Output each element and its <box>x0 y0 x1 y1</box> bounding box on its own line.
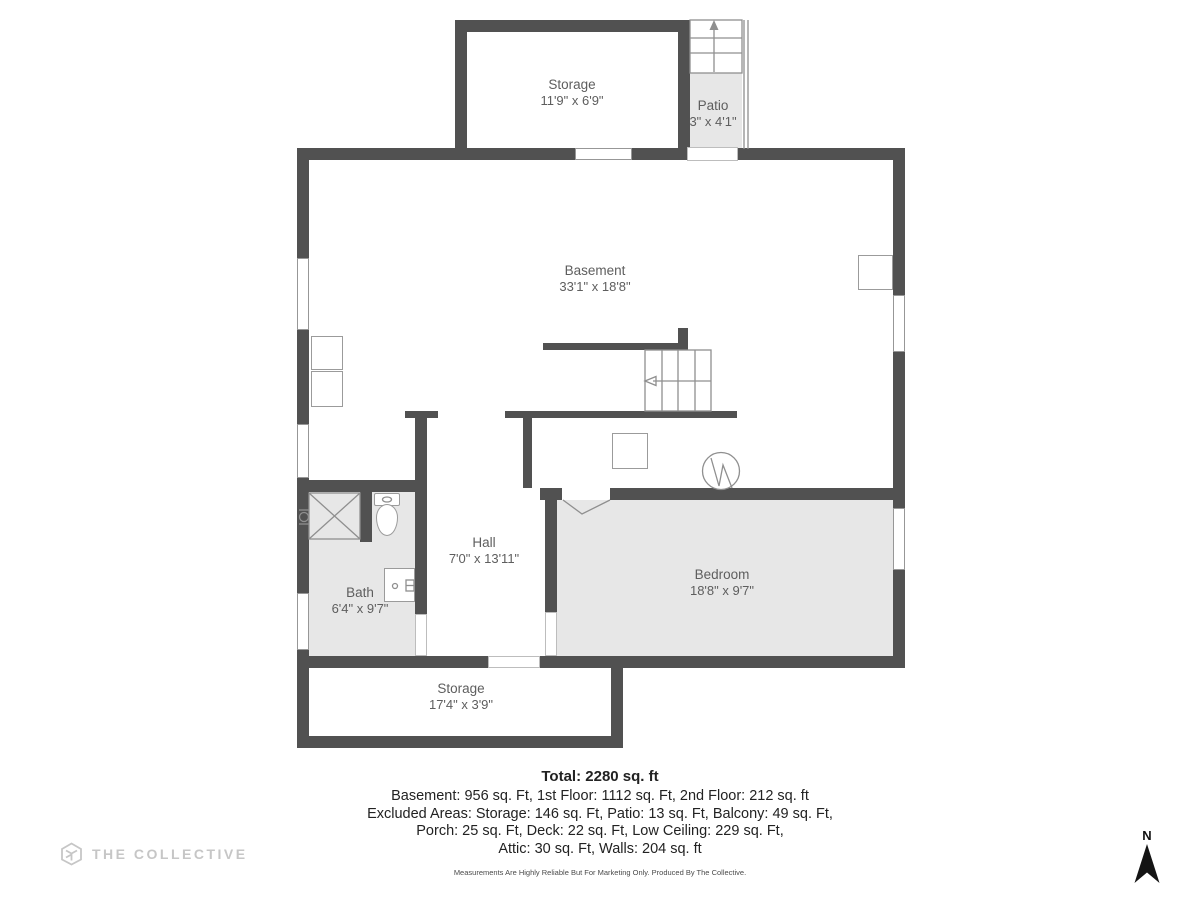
logo-hexagon-icon <box>60 842 83 866</box>
door-opening-bedroom <box>562 488 610 500</box>
door-opening-bath <box>415 614 427 656</box>
window <box>297 593 309 650</box>
utility-box <box>858 255 893 290</box>
disclaimer-text: Measurements Are Highly Reliable But For… <box>0 868 1200 878</box>
wall-segment <box>297 656 905 668</box>
room-dimensions: 6'4" x 9'7" <box>332 601 389 617</box>
basement-staircase-icon <box>645 350 711 411</box>
room-name: Bedroom <box>690 566 754 583</box>
compass-north: N <box>1129 829 1165 890</box>
wall-segment <box>611 668 623 736</box>
brand-logo: THE COLLECTIVE <box>60 842 248 866</box>
wall-segment <box>678 328 688 343</box>
wall-segment <box>297 148 309 668</box>
door-opening-patio <box>687 147 738 161</box>
room-name: Storage <box>429 680 493 697</box>
room-label-bedroom: Bedroom 18'8" x 9'7" <box>690 566 754 599</box>
room-label-basement: Basement 33'1" x 18'8" <box>559 262 630 295</box>
wall-segment <box>455 20 467 160</box>
room-name: Bath <box>332 584 389 601</box>
room-label-patio: Patio 3" x 4'1" <box>689 97 736 130</box>
room-dimensions: 33'1" x 18'8" <box>559 279 630 295</box>
room-dimensions: 3" x 4'1" <box>689 114 736 130</box>
room-dimensions: 11'9" x 6'9" <box>540 93 603 109</box>
summary-line: Basement: 956 sq. Ft, 1st Floor: 1112 sq… <box>0 788 1200 806</box>
wall-segment <box>678 20 690 148</box>
window <box>297 424 309 478</box>
total-area: Total: 2280 sq. ft <box>0 768 1200 786</box>
north-label: N <box>1129 829 1165 842</box>
door-opening-storage-bottom <box>488 656 540 668</box>
room-dimensions: 7'0" x 13'11" <box>449 551 519 567</box>
wall-segment <box>405 411 438 418</box>
water-heater-icon <box>703 453 740 490</box>
wall-segment <box>545 500 557 612</box>
summary-line: Excluded Areas: Storage: 146 sq. Ft, Pat… <box>0 806 1200 824</box>
summary-line: Porch: 25 sq. Ft, Deck: 22 sq. Ft, Low C… <box>0 823 1200 841</box>
wall-segment <box>415 418 427 488</box>
room-name: Patio <box>689 97 736 114</box>
dryer-box <box>311 371 343 407</box>
wall-segment <box>505 411 737 418</box>
room-dimensions: 17'4" x 3'9" <box>429 697 493 713</box>
upper-staircase-icon <box>690 20 742 73</box>
wall-segment <box>455 20 690 32</box>
wall-segment <box>893 148 905 668</box>
north-arrow-icon <box>1129 843 1165 885</box>
patio-rail-lines <box>744 20 748 149</box>
wall-segment <box>360 492 372 542</box>
plan-line-art <box>0 0 1200 900</box>
wall-segment <box>543 343 688 350</box>
room-name: Hall <box>449 534 519 551</box>
window <box>893 508 905 570</box>
wall-segment <box>297 480 427 492</box>
wall-segment <box>523 418 532 488</box>
furnace-box <box>612 433 648 469</box>
room-name: Basement <box>559 262 630 279</box>
room-label-storage-bottom: Storage 17'4" x 3'9" <box>429 680 493 713</box>
window <box>575 148 632 160</box>
room-label-bath: Bath 6'4" x 9'7" <box>332 584 389 617</box>
wall-segment <box>297 736 623 748</box>
room-label-hall: Hall 7'0" x 13'11" <box>449 534 519 567</box>
window <box>893 295 905 352</box>
washer-box <box>311 336 343 370</box>
vanity-sink <box>384 568 415 602</box>
floor-plan-page: Storage 11'9" x 6'9" Patio 3" x 4'1" Bas… <box>0 0 1200 900</box>
logo-text: THE COLLECTIVE <box>92 846 248 862</box>
window <box>297 258 309 330</box>
room-label-storage-top: Storage 11'9" x 6'9" <box>540 76 603 109</box>
wall-segment <box>415 492 427 614</box>
room-name: Storage <box>540 76 603 93</box>
door-opening-hall-bedroom <box>545 612 557 656</box>
room-dimensions: 18'8" x 9'7" <box>690 583 754 599</box>
